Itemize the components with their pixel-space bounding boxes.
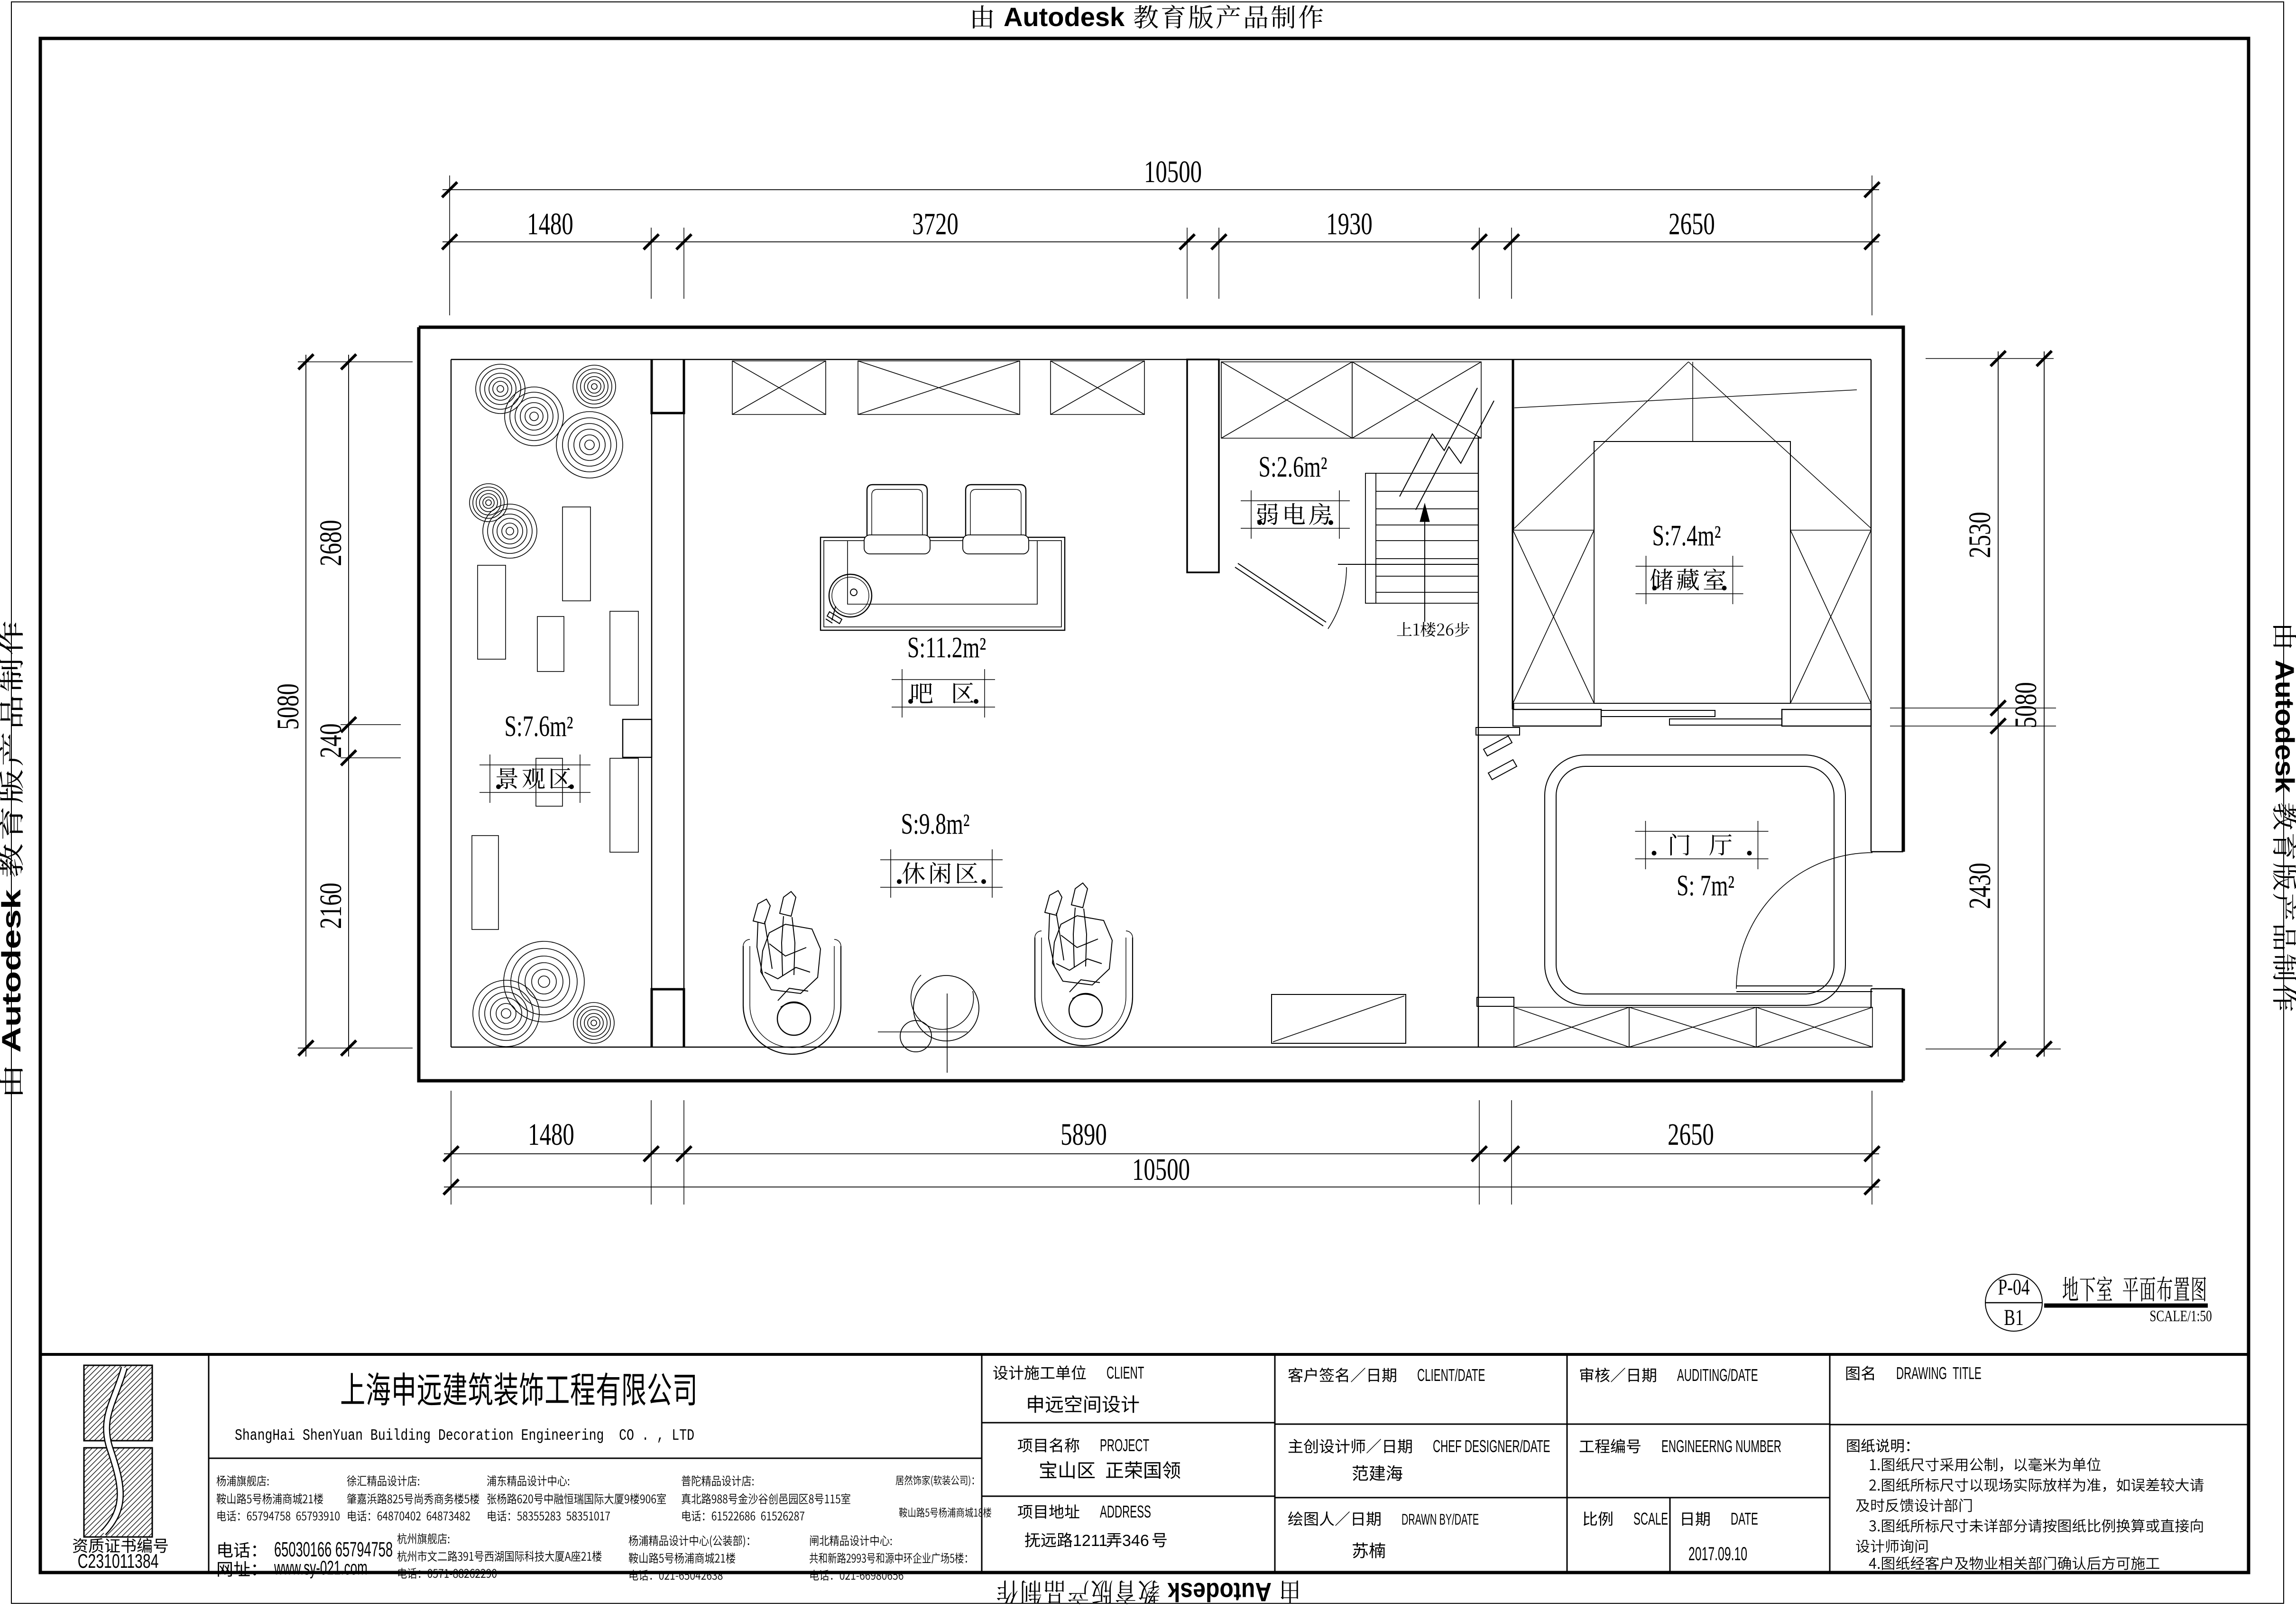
svg-text:SCALE: SCALE	[1633, 1510, 1668, 1529]
svg-text:AUDITING/DATE: AUDITING/DATE	[1677, 1366, 1758, 1385]
svg-text:DATE: DATE	[1731, 1510, 1758, 1529]
svg-text:2430: 2430	[1962, 863, 1997, 909]
svg-text:S:9.8m²: S:9.8m²	[901, 807, 970, 840]
svg-text:P-04: P-04	[1998, 1275, 2029, 1300]
svg-text:S: 7m²: S: 7m²	[1677, 869, 1734, 902]
svg-text:2650: 2650	[1669, 206, 1715, 241]
svg-text:B1: B1	[2004, 1305, 2023, 1330]
svg-text:S:2.6m²: S:2.6m²	[1259, 450, 1328, 483]
svg-text:1480: 1480	[528, 1117, 574, 1152]
svg-text:2017.09.10: 2017.09.10	[1688, 1544, 1747, 1564]
svg-text:S:11.2m²: S:11.2m²	[907, 631, 986, 663]
svg-text:2680: 2680	[313, 520, 348, 566]
svg-text:SCALE/1:50: SCALE/1:50	[2149, 1307, 2212, 1325]
svg-text:CLIENT/DATE: CLIENT/DATE	[1417, 1366, 1485, 1385]
svg-text:www.sy-021.com: www.sy-021.com	[274, 1557, 368, 1579]
svg-text:C231011384: C231011384	[78, 1550, 159, 1572]
svg-text:2160: 2160	[313, 883, 348, 929]
svg-text:DRAWN BY/DATE: DRAWN BY/DATE	[1402, 1511, 1479, 1528]
svg-text:ADDRESS: ADDRESS	[1100, 1503, 1151, 1522]
svg-text:346: 346	[1122, 1532, 1149, 1550]
svg-text:ENGINEERNG NUMBER: ENGINEERNG NUMBER	[1661, 1437, 1781, 1456]
svg-text:1211: 1211	[1073, 1532, 1107, 1550]
svg-text:CLIENT: CLIENT	[1107, 1364, 1144, 1383]
svg-text:S:7.4m²: S:7.4m²	[1652, 519, 1721, 552]
svg-text:10500: 10500	[1132, 1152, 1190, 1187]
svg-text:5080: 5080	[270, 683, 305, 730]
svg-text:2650: 2650	[1668, 1117, 1714, 1152]
svg-text:3720: 3720	[912, 206, 959, 241]
svg-text:10500: 10500	[1144, 154, 1202, 189]
svg-text:5890: 5890	[1060, 1117, 1107, 1152]
svg-text:1480: 1480	[527, 206, 573, 241]
svg-text:5080: 5080	[2008, 682, 2043, 728]
svg-text:PROJECT: PROJECT	[1100, 1436, 1149, 1455]
svg-text:2530: 2530	[1962, 512, 1997, 558]
svg-text:S:7.6m²: S:7.6m²	[505, 709, 573, 742]
svg-text:ShangHai ShenYuan Building Dec: ShangHai ShenYuan Building Decoration En…	[235, 1427, 694, 1444]
svg-text:DRAWING TITLE: DRAWING TITLE	[1896, 1364, 1982, 1383]
svg-text:240: 240	[313, 723, 348, 758]
svg-text:CHEF DESIGNER/DATE: CHEF DESIGNER/DATE	[1433, 1437, 1550, 1456]
svg-text:1930: 1930	[1326, 206, 1373, 241]
